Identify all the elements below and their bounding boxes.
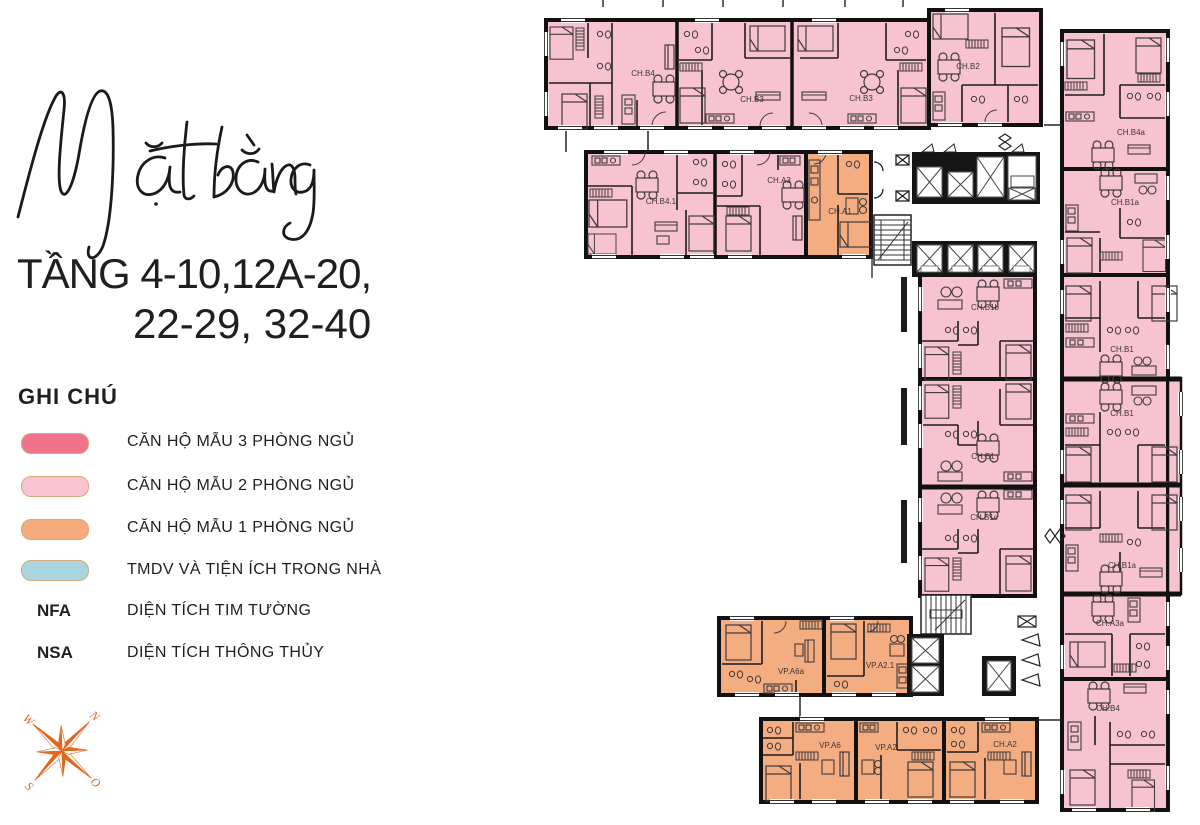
svg-text:CH.B4a: CH.B4a [1117, 128, 1146, 137]
svg-text:CH.B1a: CH.B1a [1111, 198, 1140, 207]
svg-text:VP.A6: VP.A6 [819, 741, 841, 750]
svg-text:CH.A2: CH.A2 [993, 740, 1017, 749]
svg-text:CH.B4: CH.B4 [631, 69, 655, 78]
svg-text:CH.B4: CH.B4 [1096, 704, 1120, 713]
svg-text:CH.B3: CH.B3 [849, 94, 873, 103]
svg-text:CH.B1: CH.B1 [1110, 409, 1134, 418]
svg-text:CH.B3: CH.B3 [740, 95, 764, 104]
svg-text:VP.A2: VP.A2 [875, 743, 897, 752]
svg-text:CH.A3: CH.A3 [767, 176, 791, 185]
svg-text:CH.B1: CH.B1 [1110, 345, 1134, 354]
svg-text:CH.B1: CH.B1 [971, 452, 995, 461]
svg-text:CH.B2: CH.B2 [956, 62, 980, 71]
svg-text:CH.B4.1: CH.B4.1 [646, 197, 677, 206]
svg-text:VP.A6a: VP.A6a [778, 667, 805, 676]
svg-text:CH.B1a: CH.B1a [1108, 561, 1137, 570]
svg-text:CH.A3a: CH.A3a [1096, 619, 1125, 628]
svg-text:CH.B1c: CH.B1c [970, 513, 998, 522]
svg-text:CH.B1b: CH.B1b [971, 303, 1000, 312]
svg-text:VP.A2.1: VP.A2.1 [866, 661, 895, 670]
svg-text:CH.A1: CH.A1 [828, 207, 852, 216]
svg-text:S: S [22, 779, 36, 793]
